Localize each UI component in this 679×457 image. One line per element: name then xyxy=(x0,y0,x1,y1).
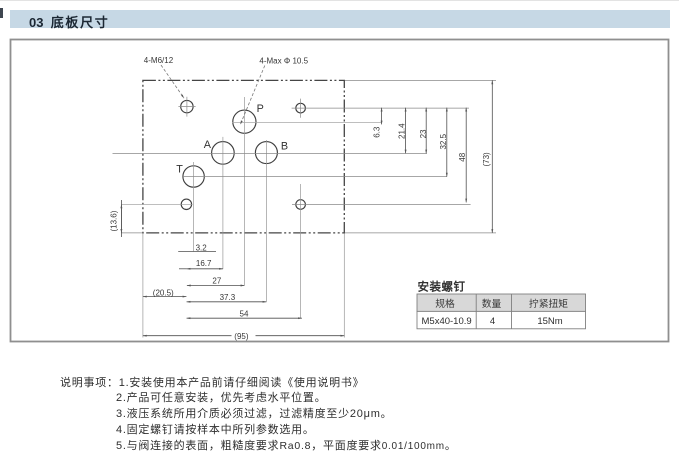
svg-text:16.7: 16.7 xyxy=(196,259,212,268)
svg-text:T: T xyxy=(176,163,183,175)
svg-text:37.3: 37.3 xyxy=(220,293,236,302)
svg-text:B: B xyxy=(281,140,288,152)
svg-text:4-Max Φ 10.5: 4-Max Φ 10.5 xyxy=(259,57,308,66)
svg-text:拧紧扭矩: 拧紧扭矩 xyxy=(529,297,568,310)
svg-text:(20.5): (20.5) xyxy=(153,288,174,297)
svg-text:4-M6/12: 4-M6/12 xyxy=(144,56,174,65)
svg-text:数量: 数量 xyxy=(482,297,502,310)
svg-text:(73): (73) xyxy=(482,152,491,167)
svg-text:15Nm: 15Nm xyxy=(537,316,562,327)
svg-text:23: 23 xyxy=(419,129,428,138)
svg-text:48: 48 xyxy=(458,152,467,161)
svg-text:27: 27 xyxy=(212,276,221,285)
svg-text:32.5: 32.5 xyxy=(439,133,448,149)
svg-text:(95): (95) xyxy=(234,332,249,341)
svg-text:A: A xyxy=(204,139,212,151)
svg-text:21.4: 21.4 xyxy=(397,123,406,139)
svg-text:P: P xyxy=(257,103,264,115)
svg-text:6.3: 6.3 xyxy=(372,126,381,138)
svg-text:安装螺钉: 安装螺钉 xyxy=(418,280,466,294)
svg-text:4: 4 xyxy=(490,316,495,327)
svg-text:54: 54 xyxy=(240,310,249,319)
svg-text:3.2: 3.2 xyxy=(196,243,208,252)
svg-text:规格: 规格 xyxy=(435,297,455,310)
svg-text:M5x40-10.9: M5x40-10.9 xyxy=(422,316,472,327)
svg-text:(13.6): (13.6) xyxy=(110,210,119,231)
